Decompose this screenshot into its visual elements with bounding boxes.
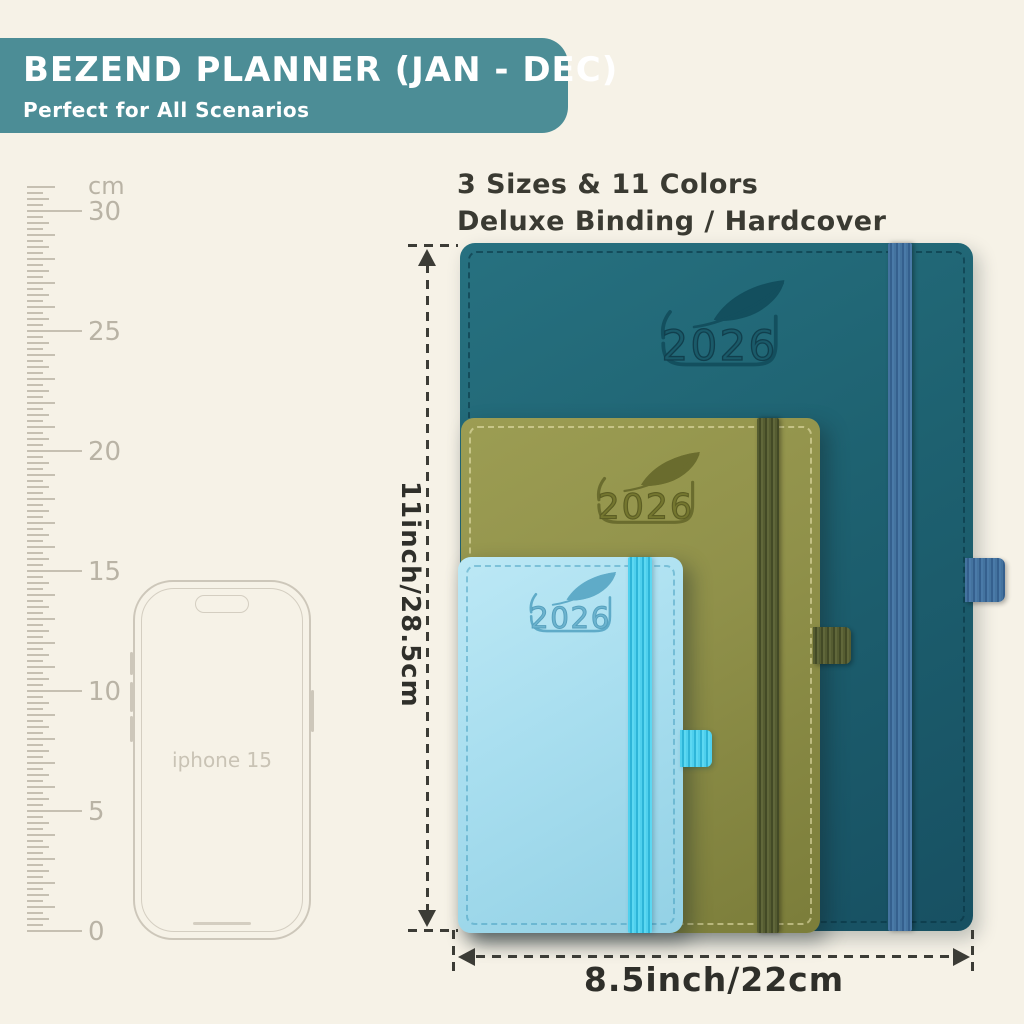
year-emboss: 2026 <box>597 488 694 528</box>
ruler-number-label: 30 <box>88 197 121 227</box>
dim-tick-left <box>452 930 455 978</box>
emboss-2026-logo: 2026 <box>582 446 707 527</box>
height-dimension-label: 11inch/28.5cm <box>395 481 425 701</box>
dim-line-horizontal <box>476 955 954 958</box>
ruler-unit-label: cm <box>88 172 125 200</box>
elastic-band <box>888 243 912 931</box>
phone-side-button <box>311 690 314 732</box>
feature-text: 3 Sizes & 11 Colors Deluxe Binding / Har… <box>457 166 886 240</box>
feature-line-binding: Deluxe Binding / Hardcover <box>457 203 886 240</box>
phone-notch <box>195 595 249 613</box>
planner-small-blue: 2026 <box>458 557 683 933</box>
elastic-band <box>757 418 779 933</box>
ruler-number-label: 20 <box>88 437 121 467</box>
phone-home-bar <box>193 922 251 925</box>
phone-side-button <box>130 652 133 675</box>
phone-label: iphone 15 <box>135 748 309 772</box>
dim-line-vertical <box>426 264 429 914</box>
dim-arrow-left <box>458 948 475 966</box>
emboss-2026-logo: 2026 <box>517 567 622 635</box>
width-dimension-label: 8.5inch/22cm <box>564 960 864 999</box>
dim-tick-top <box>408 244 458 247</box>
pen-loop <box>965 558 1005 602</box>
pen-loop <box>813 627 851 664</box>
phone-outline: iphone 15 <box>133 580 311 940</box>
feature-line-sizes: 3 Sizes & 11 Colors <box>457 166 886 203</box>
year-emboss: 2026 <box>530 601 611 635</box>
emboss-2026-logo: 2026 <box>643 273 793 371</box>
phone-side-button <box>130 682 133 712</box>
pen-loop <box>680 730 712 767</box>
year-emboss: 2026 <box>662 321 778 370</box>
product-title: BEZEND PLANNER (JAN - DEC) <box>23 50 618 90</box>
header-banner: BEZEND PLANNER (JAN - DEC) Perfect for A… <box>0 38 568 133</box>
dim-arrow-down <box>418 910 436 927</box>
ruler-number-label: 0 <box>88 917 105 947</box>
product-infographic: BEZEND PLANNER (JAN - DEC) Perfect for A… <box>0 0 1024 1024</box>
feather-icon <box>641 452 699 485</box>
feather-icon <box>714 281 784 321</box>
ruler-number-label: 10 <box>88 677 121 707</box>
ruler-number-label: 15 <box>88 557 121 587</box>
phone-side-button <box>130 716 133 742</box>
dim-tick-bottom <box>408 929 458 932</box>
elastic-band <box>628 557 652 933</box>
dim-arrow-right <box>953 948 970 966</box>
feather-icon <box>567 572 616 600</box>
ruler-number-label: 5 <box>88 797 105 827</box>
product-subtitle: Perfect for All Scenarios <box>23 98 310 122</box>
dim-tick-right <box>971 930 974 978</box>
ruler-number-label: 25 <box>88 317 121 347</box>
